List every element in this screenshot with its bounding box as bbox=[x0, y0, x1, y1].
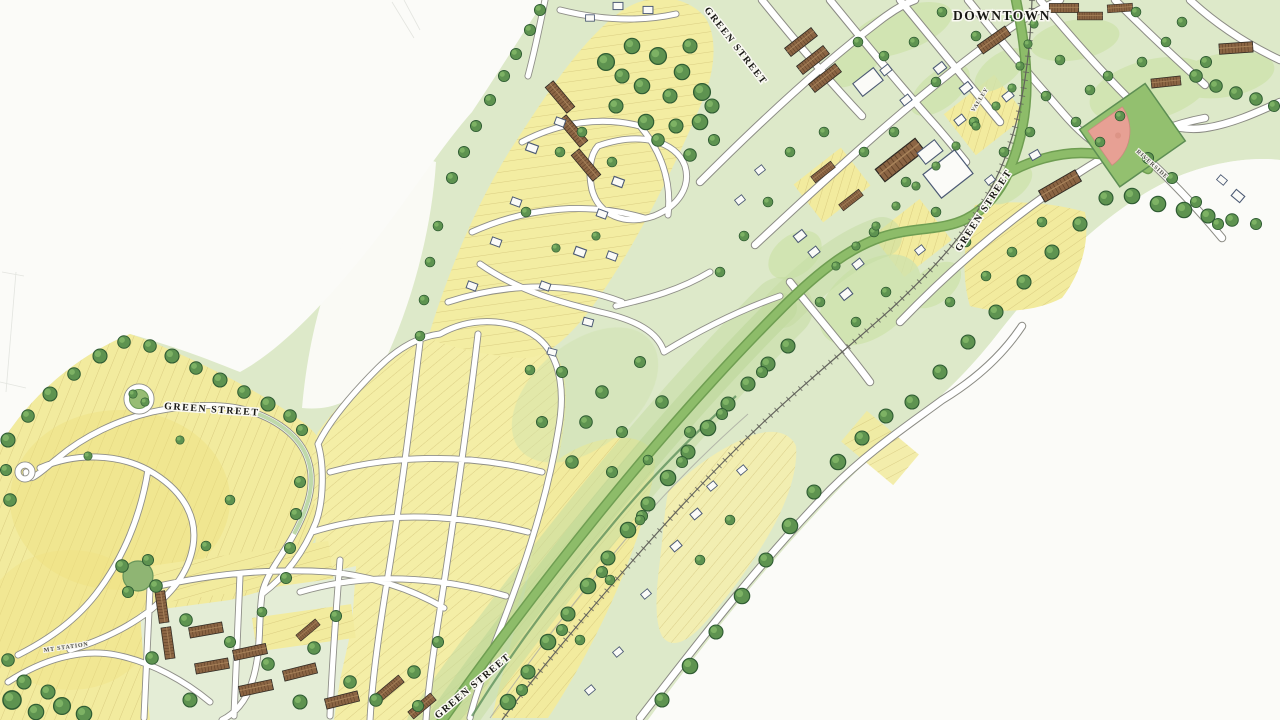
master-plan-map: DOWNTOWN GREEN STREET GREEN STREET GREEN… bbox=[0, 0, 1280, 720]
label-downtown: DOWNTOWN bbox=[953, 8, 1051, 23]
map-canvas: DOWNTOWN GREEN STREET GREEN STREET GREEN… bbox=[0, 0, 1280, 720]
